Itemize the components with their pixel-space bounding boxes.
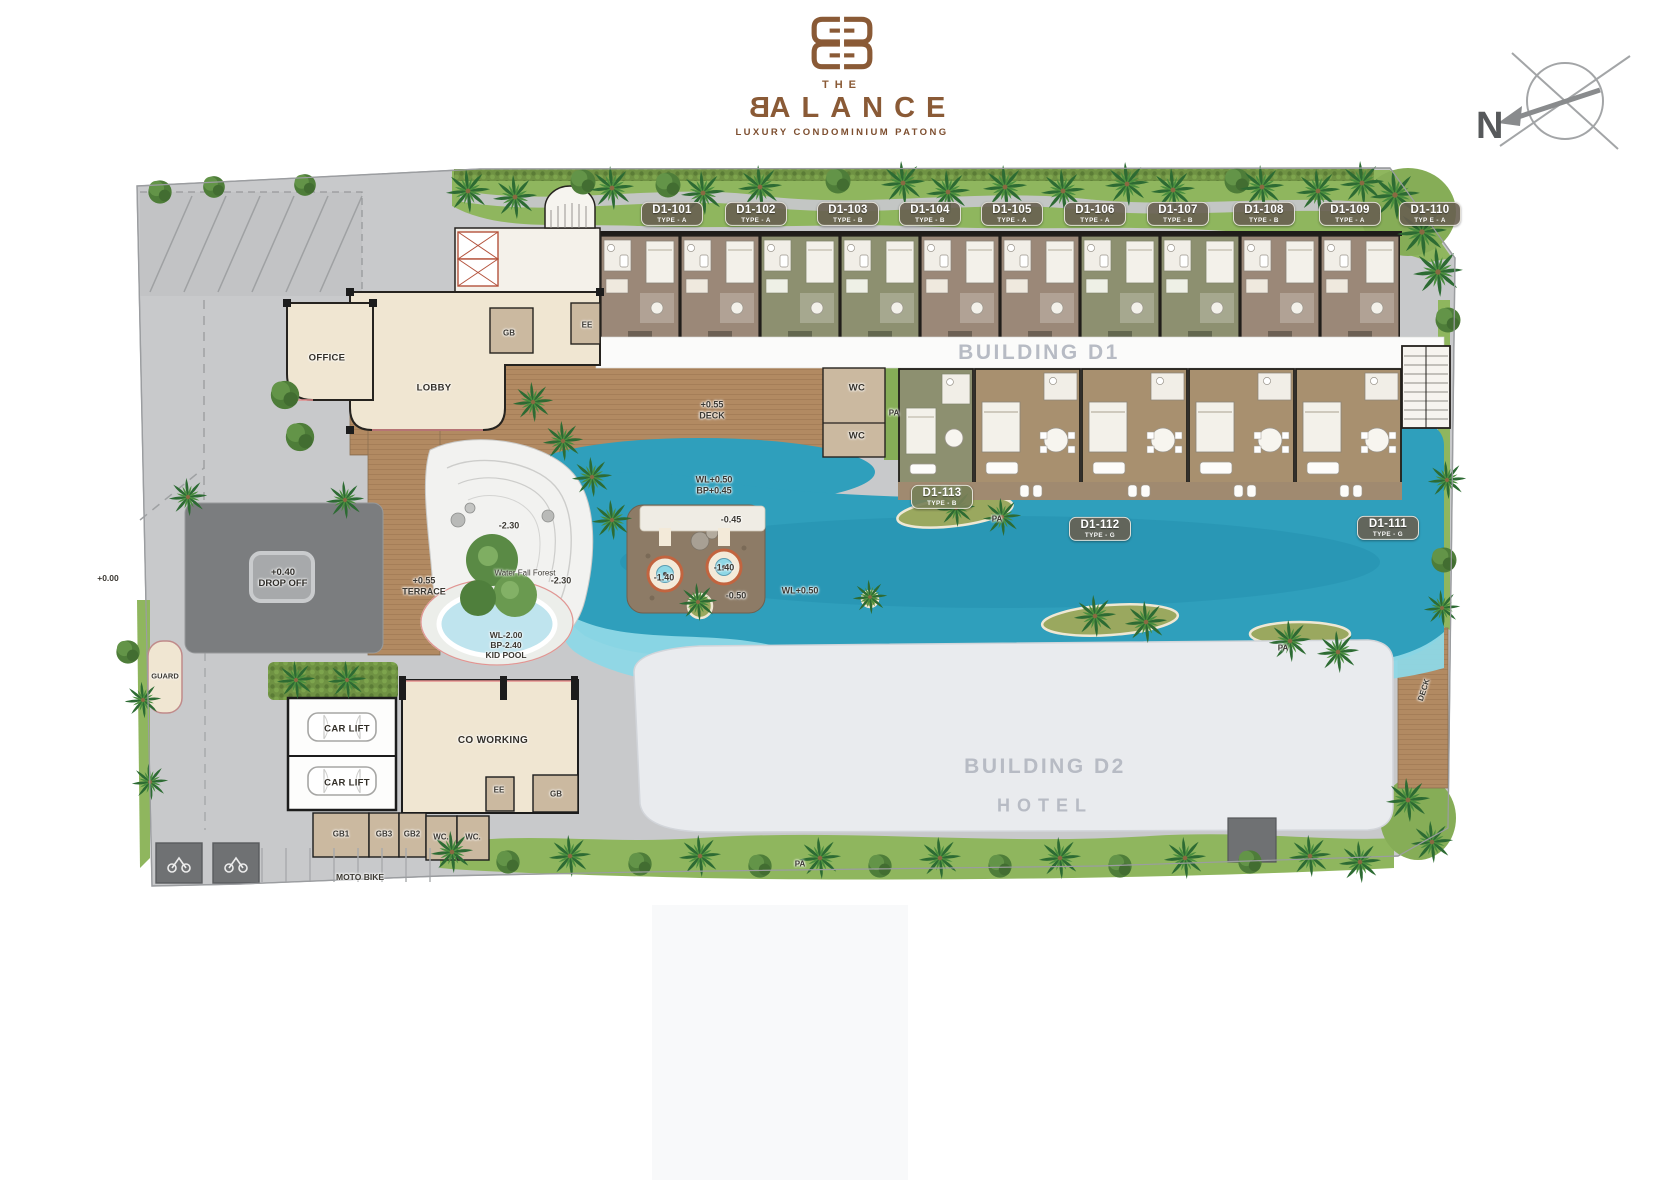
gb-room [490, 308, 533, 353]
site-plan-page: BUILDING D1 BUILDING D2 HOTEL D1-101TYPE… [0, 0, 1680, 1185]
brand-logo: THE BALANCE LUXURY CONDOMINIUM PATONG [672, 16, 1012, 138]
unit-module [1081, 236, 1159, 338]
right-stair-block [1402, 346, 1450, 428]
unit-module [899, 369, 973, 485]
unit-module [1082, 369, 1187, 485]
co-working-room [399, 676, 578, 813]
wc-rooms [823, 368, 885, 457]
ee-room [571, 303, 600, 344]
office-room [287, 303, 373, 400]
unit-module [1161, 236, 1239, 338]
watermark-area [652, 905, 908, 1180]
unit-module [975, 369, 1080, 485]
building-d1-corridor [596, 337, 1444, 368]
guard-house [148, 641, 182, 713]
storage-rooms [313, 813, 489, 860]
brand-logo-mark [809, 16, 875, 70]
brand-tagline: LUXURY CONDOMINIUM PATONG [672, 127, 1012, 138]
unit-module [761, 236, 839, 338]
building-d1-top-row [598, 231, 1402, 338]
elevator-shafts [458, 232, 498, 286]
north-label: N [1476, 105, 1503, 147]
building-d2 [634, 640, 1393, 862]
unit-module [1001, 236, 1079, 338]
site-plan-graphic [0, 0, 1680, 1185]
brand-name: BALANCE [672, 92, 1012, 125]
ee-room [486, 777, 514, 811]
unit-module [681, 236, 759, 338]
drop-off-pad [185, 503, 383, 653]
unit-module [921, 236, 999, 338]
car-lift-rooms [288, 698, 396, 810]
unit-module [1321, 236, 1399, 338]
unit-module [1189, 369, 1294, 485]
building-d1-pool-row [898, 369, 1402, 500]
compass-rose: N [1462, 38, 1662, 158]
unit-module [601, 236, 679, 338]
unit-module [1241, 236, 1319, 338]
unit-module [1296, 369, 1401, 485]
unit-module [841, 236, 919, 338]
gb-room [533, 775, 578, 812]
brand-the: THE [672, 79, 1012, 91]
